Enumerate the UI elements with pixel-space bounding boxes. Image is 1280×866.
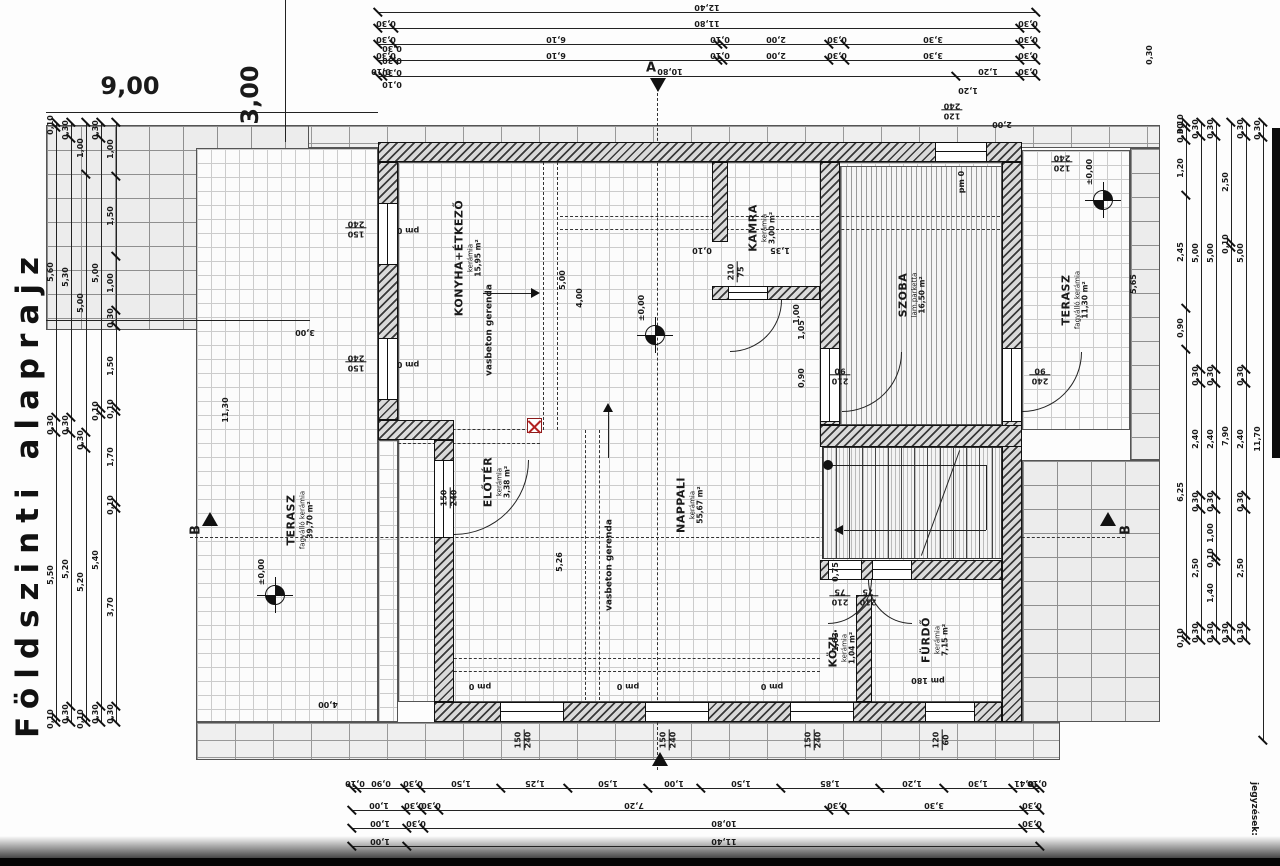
label-pm-0: pm 0 bbox=[397, 360, 419, 368]
room-label-nappali-t: NAPPALI bbox=[675, 477, 688, 533]
winlabel-terasz-right-v2: 240 bbox=[1054, 153, 1071, 162]
dim-chain-left-5-value: 0,10 bbox=[107, 399, 115, 419]
dim-chain-top-3-value: 3,30 bbox=[923, 35, 943, 43]
winlabel-szoba-door: 21090 bbox=[830, 366, 851, 385]
label-5-26: 5,26 bbox=[556, 552, 564, 572]
dim-chain-left-3-value: 5,00 bbox=[77, 293, 85, 313]
dim-chain-left-4-value: 5,00 bbox=[92, 263, 100, 283]
right-edge-bar bbox=[1272, 128, 1280, 458]
room-label-konyha-a: 15,95 m² bbox=[474, 200, 483, 316]
label-5-00: 5,00 bbox=[559, 270, 567, 290]
window-bottom-2 bbox=[645, 702, 709, 722]
winlabel-terasz-door: 24090 bbox=[1030, 366, 1051, 385]
dim-chain-top-3-value: 6,10 bbox=[546, 35, 566, 43]
room-label-kamra-t: KAMRA bbox=[747, 204, 760, 251]
dim-chain-right-2 bbox=[1201, 122, 1202, 640]
paving-bottom-band bbox=[196, 722, 1060, 760]
dim-chain-right-5-value: 2,50 bbox=[1237, 558, 1245, 578]
dim-chain-right-4-value: 2,50 bbox=[1222, 172, 1230, 192]
dim-chain-bottom-2-value: 0,30 bbox=[421, 801, 441, 809]
beam-dash-4 bbox=[560, 229, 1000, 230]
dim-chain-right-2-value: 0,30 bbox=[1192, 119, 1200, 139]
window-szoba-top-mullion bbox=[936, 151, 986, 152]
room-label-terasz-left: TERASZfagyálló kerámia39,70 m² bbox=[285, 491, 314, 549]
beam-arrow-kitchen bbox=[483, 293, 531, 294]
dim-chain-right-2-value: 0,30 bbox=[1192, 492, 1200, 512]
dim-chain-right-5 bbox=[1246, 122, 1247, 640]
room-label-konyha: KONYHA+ÉTKEZŐkerámia15,95 m² bbox=[453, 200, 482, 316]
dim-chain-bottom-2-value: 7,20 bbox=[624, 801, 644, 809]
dim-chain-top-5-value: 10,80 bbox=[657, 67, 682, 75]
window-bottom-3-mullion bbox=[791, 711, 853, 712]
staircase-start-dot bbox=[823, 460, 833, 470]
room-label-terasz-left-a: 39,70 m² bbox=[306, 491, 315, 549]
dim-chain-right-2-value: 0,30 bbox=[1192, 623, 1200, 643]
label-3-00: 3,00 bbox=[238, 65, 262, 124]
dim-chain-bottom-1 bbox=[352, 788, 1040, 789]
winlabel-furdo-door: 21075 bbox=[858, 587, 879, 606]
wall-kitchen-bottom bbox=[378, 420, 454, 440]
dim-chain-top-3-value: 0,30 bbox=[827, 35, 847, 43]
dim-chain-right-3-value: 0,10 bbox=[1207, 548, 1215, 568]
winlabel-szoba-door-v1: 210 bbox=[830, 375, 851, 385]
label-9-00: 9,00 bbox=[100, 74, 159, 98]
dim-chain-top-3-value: 2,00 bbox=[766, 35, 786, 43]
label-0-90: 0,90 bbox=[798, 368, 806, 388]
label-vasbeton-gerenda: vasbeton gerenda bbox=[606, 519, 615, 611]
beam-dash-6 bbox=[398, 443, 540, 444]
dim-chain-top-3-value: 0,30 bbox=[1018, 35, 1038, 43]
dim-chain-left-4-value: 0,30 bbox=[92, 704, 100, 724]
door-szoba-terasz-opening-mullion bbox=[1011, 349, 1012, 421]
dim-chain-left-1-value: 0,30 bbox=[47, 415, 55, 435]
dim-chain-left-3-value: 0,30 bbox=[77, 430, 85, 450]
winlabel-kamra-door-v2: 75 bbox=[738, 266, 747, 277]
dim-chain-right-5-value: 2,40 bbox=[1237, 429, 1245, 449]
winlabel-bottom-1: 150240 bbox=[515, 730, 534, 751]
label-2-00: 2,00 bbox=[992, 120, 1012, 128]
room-label-kamra-a: 3,00 m² bbox=[768, 204, 777, 251]
floor-plan-canvas: Földszinti alaprajz jegyzések: 12,400,30… bbox=[0, 0, 1280, 866]
dim-chain-right-3-value: 1,40 bbox=[1207, 583, 1215, 603]
label-a: A bbox=[646, 62, 656, 75]
dim-chain-top-4 bbox=[378, 60, 1036, 61]
dim-chain-left-2 bbox=[71, 122, 72, 722]
winlabel-kitchen-lower: 150240 bbox=[346, 353, 367, 372]
dim-chain-left-1-value: 5,50 bbox=[47, 565, 55, 585]
dim-chain-bottom-3-value: 0,30 bbox=[406, 819, 426, 827]
dim-chain-top-4-value: 0,10 bbox=[710, 51, 730, 59]
winlabel-kozl-door-v1: 210 bbox=[830, 596, 851, 606]
drawing-title: Földszinti alaprajz bbox=[10, 198, 46, 738]
dim-chain-bottom-2-value: 1,00 bbox=[369, 801, 389, 809]
dim-chain-left-1 bbox=[56, 122, 57, 722]
beam-dash-10 bbox=[434, 671, 820, 672]
room-label-szoba-t: SZOBA bbox=[897, 273, 910, 318]
dim-chain-right-1-value: 0,10 bbox=[1177, 628, 1185, 648]
label-0-10: 0,10 bbox=[382, 80, 402, 88]
winlabel-terasz-right-v1: 120 bbox=[1052, 162, 1073, 172]
label--0-00: ±0,00 bbox=[1086, 159, 1094, 185]
staircase-walkline-bottom bbox=[844, 530, 986, 531]
label-pm-0: pm 0 bbox=[617, 682, 639, 690]
dim-chain-left-3 bbox=[86, 122, 87, 722]
door-furdo-opening bbox=[872, 560, 912, 580]
dim-chain-left-5 bbox=[116, 122, 117, 722]
winlabel-furdo-door-v2: 75 bbox=[862, 587, 873, 596]
dim-chain-right-4-value: 0,30 bbox=[1222, 623, 1230, 643]
dim-chain-right-1-value: 6,25 bbox=[1177, 482, 1185, 502]
dim-chain-left-5-value: 0,30 bbox=[107, 308, 115, 328]
dim-chain-bottom-1-value: 1,50 bbox=[598, 779, 618, 787]
winlabel-kitchen-upper-v1: 150 bbox=[346, 228, 367, 238]
dim-chain-bottom-1-value: 1,50 bbox=[731, 779, 751, 787]
dim-chain-left-5-value: 3,70 bbox=[107, 597, 115, 617]
paving-right-strip bbox=[1130, 148, 1160, 460]
staircase-walk-arrow bbox=[834, 525, 843, 535]
drain-marker bbox=[527, 418, 542, 433]
winlabel-terasz-door-v1: 240 bbox=[1030, 375, 1051, 385]
dim-chain-right-1-value: 1,20 bbox=[1177, 158, 1185, 178]
dim-chain-bottom-3 bbox=[352, 828, 1040, 829]
dim-chain-right-5-value: 5,00 bbox=[1237, 243, 1245, 263]
dim-chain-right-6-value: 11,70 bbox=[1254, 426, 1262, 451]
winlabel-szoba-top: 120240 bbox=[942, 101, 963, 120]
beam-dash-2 bbox=[557, 162, 558, 430]
dim-chain-bottom-2-value: 3,30 bbox=[924, 801, 944, 809]
label-11-30: 11,30 bbox=[222, 397, 230, 422]
level-marker-nappali-circle bbox=[645, 325, 665, 345]
dim-chain-top-5-value: 1,20 bbox=[978, 67, 998, 75]
winlabel-kitchen-lower-v1: 150 bbox=[346, 362, 367, 372]
label-1-63: 1,63 bbox=[832, 632, 840, 652]
dim-chain-left-5-value: 1,00 bbox=[107, 273, 115, 293]
dim-chain-right-3-value: 0,30 bbox=[1207, 119, 1215, 139]
dim-chain-bottom-3-value: 0,30 bbox=[1022, 819, 1042, 827]
bottom-fade-bar bbox=[0, 836, 1280, 860]
door-szoba-terasz-opening bbox=[1002, 348, 1022, 422]
winlabel-furdo-v2: 60 bbox=[943, 734, 952, 745]
dim-chain-top-3 bbox=[378, 44, 1036, 45]
dim-chain-left-2-value: 0,30 bbox=[62, 120, 70, 140]
winlabel-entry-door-v2: 240 bbox=[451, 490, 460, 507]
dim-chain-top-5 bbox=[378, 76, 1036, 77]
dim-chain-right-2-value: 0,30 bbox=[1192, 366, 1200, 386]
beam-dash-8 bbox=[599, 430, 600, 700]
window-bottom-1 bbox=[500, 702, 564, 722]
room-label-terasz-left-t: TERASZ bbox=[285, 491, 298, 549]
door-kamra-opening-mullion bbox=[729, 292, 767, 293]
winlabel-terasz-door-v2: 90 bbox=[1034, 366, 1045, 375]
dim-chain-right-4-value: 7,90 bbox=[1222, 426, 1230, 446]
wall-szoba-bottom bbox=[820, 425, 1022, 447]
level-marker-terasz-left bbox=[265, 585, 285, 605]
label-pm-0: pm 0 bbox=[958, 171, 966, 193]
dim-chain-right-3-value: 0,30 bbox=[1207, 366, 1215, 386]
dim-chain-left-5-value: 0,30 bbox=[107, 704, 115, 724]
room-label-nappali: NAPPALIkerámia55,67 m² bbox=[675, 477, 704, 533]
dim-chain-bottom-1-value: 1,20 bbox=[902, 779, 922, 787]
dim-chain-bottom-1-value: 1,85 bbox=[820, 779, 840, 787]
beam-dash-9 bbox=[434, 658, 820, 659]
dim-chain-right-2-value: 2,50 bbox=[1192, 558, 1200, 578]
winlabel-kitchen-lower-v2: 240 bbox=[348, 353, 365, 362]
dim-chain-top-3-value: 0,30 bbox=[376, 35, 396, 43]
dim-chain-bottom-3-value: 10,80 bbox=[711, 819, 736, 827]
room-label-furdo-t: FÜRDŐ bbox=[920, 617, 933, 663]
label-0-10: 0,10 bbox=[692, 246, 712, 254]
dim-chain-top-2-value: 11,80 bbox=[694, 19, 719, 27]
window-kitchen-upper bbox=[378, 203, 398, 265]
dim-chain-left-5-value: 0,10 bbox=[107, 495, 115, 515]
dim-chain-top-5-value: 0,30 bbox=[1018, 67, 1038, 75]
winlabel-bottom-2: 150240 bbox=[660, 730, 679, 751]
dim-chain-top-4-value: 0,30 bbox=[1018, 51, 1038, 59]
room-label-eloter-a: 3,38 m² bbox=[503, 457, 512, 507]
beam-dash-1 bbox=[543, 162, 544, 430]
dim-chain-left-4 bbox=[101, 122, 102, 722]
label-4-00: 4,00 bbox=[576, 288, 584, 308]
level-marker-terasz-right-circle bbox=[1093, 190, 1113, 210]
dim-chain-right-6 bbox=[1263, 122, 1264, 740]
label-1-00: 1,00 bbox=[793, 304, 801, 324]
dim-chain-bottom-1-value: 1,00 bbox=[665, 779, 685, 787]
label-0-30: 0,30 bbox=[1146, 45, 1154, 65]
winlabel-kozl-door: 21075 bbox=[830, 587, 851, 606]
dim-chain-right-5-value: 0,30 bbox=[1237, 492, 1245, 512]
dim-chain-right-5-value: 0,30 bbox=[1237, 623, 1245, 643]
room-label-furdo: FÜRDŐkerámia7,15 m² bbox=[920, 617, 949, 663]
wall-top bbox=[378, 142, 1022, 162]
section-marker-a-bottom bbox=[652, 752, 668, 766]
label-pm-0: pm 0 bbox=[469, 682, 491, 690]
room-label-szoba: SZOBAlam.parketta16,50 m² bbox=[897, 273, 926, 318]
winlabel-terasz-right: 120240 bbox=[1052, 153, 1073, 172]
dim-chain-left-3-value: 0,10 bbox=[77, 710, 85, 730]
dim-chain-bottom-4-value: 11,40 bbox=[711, 837, 736, 845]
window-bottom-2-mullion bbox=[646, 711, 708, 712]
winlabel-furdo: 12060 bbox=[933, 730, 952, 751]
dim-chain-left-2-value: 5,20 bbox=[62, 559, 70, 579]
room-label-szoba-a: 16,50 m² bbox=[918, 273, 927, 318]
winlabel-szoba-top-v1: 120 bbox=[942, 110, 963, 120]
room-label-eloter: ELŐTÉRkerámia3,38 m² bbox=[482, 457, 511, 507]
winlabel-bottom-1-v2: 240 bbox=[525, 732, 534, 749]
dim-chain-right-3-value: 1,00 bbox=[1207, 523, 1215, 543]
dim-chain-bottom-3-value: 1,00 bbox=[370, 819, 390, 827]
dim-chain-bottom-1-value: 1,50 bbox=[451, 779, 471, 787]
room-label-kamra: KAMRAkerámia3,00 m² bbox=[747, 204, 776, 251]
dim-chain-bottom-1-value: 1,30 bbox=[968, 779, 988, 787]
winlabel-kitchen-upper-v2: 240 bbox=[348, 219, 365, 228]
dim-chain-bottom-1-value: 0,10 bbox=[345, 779, 365, 787]
dim-chain-top-4-value: 0,30 bbox=[827, 51, 847, 59]
dim-chain-bottom-1-value: 0,10 bbox=[1027, 779, 1047, 787]
label-1-35: 1,35 bbox=[770, 246, 790, 254]
winlabel-bottom-3-v2: 240 bbox=[815, 732, 824, 749]
dim-chain-left-2-value: 0,30 bbox=[62, 704, 70, 724]
room-label-eloter-t: ELŐTÉR bbox=[482, 457, 495, 507]
label-4-00: 4,00 bbox=[318, 700, 338, 708]
dim-chain-right-3-value: 0,30 bbox=[1207, 623, 1215, 643]
staircase-walkline-top bbox=[826, 465, 986, 466]
room-label-furdo-a: 7,15 m² bbox=[941, 617, 950, 663]
dim-chain-top-1-value: 12,40 bbox=[694, 3, 719, 11]
room-label-terasz-right-a: 11,30 m² bbox=[1081, 271, 1090, 329]
level-marker-nappali bbox=[645, 325, 665, 345]
dim-chain-bottom-2 bbox=[352, 810, 1040, 811]
window-kitchen-lower bbox=[378, 338, 398, 400]
dim-chain-bottom-1-value: 1,25 bbox=[525, 779, 545, 787]
label-3-00: 3,00 bbox=[295, 328, 315, 336]
room-label-konyha-t: KONYHA+ÉTKEZŐ bbox=[453, 200, 466, 316]
dim-chain-right-3-value: 5,00 bbox=[1207, 243, 1215, 263]
terrace-left-floor-ext bbox=[378, 440, 398, 722]
dim-chain-top-3-value: 0,10 bbox=[710, 35, 730, 43]
label-pm-0: pm 0 bbox=[397, 226, 419, 234]
dim-chain-right-3-value: 0,30 bbox=[1207, 492, 1215, 512]
beam-dash-7 bbox=[585, 430, 586, 700]
dim-chain-right-2-value: 5,00 bbox=[1192, 243, 1200, 263]
label-0-75: 0,75 bbox=[832, 562, 840, 582]
room-label-nappali-a: 55,67 m² bbox=[696, 477, 705, 533]
dim-chain-bottom-4 bbox=[352, 846, 1040, 847]
label-pm-0: pm 0 bbox=[761, 682, 783, 690]
dim-chain-right-3-value: 2,40 bbox=[1207, 429, 1215, 449]
dim-chain-right-1-value: 2,45 bbox=[1177, 242, 1185, 262]
dim-chain-left-1-value: 5,60 bbox=[47, 262, 55, 282]
dim-chain-bottom-1-value: 0,90 bbox=[371, 779, 391, 787]
dim-chain-top-2-value: 0,30 bbox=[1018, 19, 1038, 27]
label-0-30: 0,30 bbox=[382, 56, 402, 64]
window-bottom-3 bbox=[790, 702, 854, 722]
dim-chain-left-4-value: 0,30 bbox=[92, 120, 100, 140]
label-b: B bbox=[190, 525, 203, 535]
winlabel-szoba-top-v2: 240 bbox=[944, 101, 961, 110]
dim-chain-left-1-value: 0,10 bbox=[47, 710, 55, 730]
wall-kamra-left bbox=[712, 162, 728, 242]
dim-leader-9m bbox=[46, 112, 378, 113]
winlabel-furdo-door-v1: 210 bbox=[858, 596, 879, 606]
dim-chain-bottom-4-value: 1,00 bbox=[370, 837, 390, 845]
dim-chain-left-2-value: 5,30 bbox=[62, 267, 70, 287]
winlabel-entry-door: 150240 bbox=[441, 488, 460, 509]
room-label-terasz-right-t: TERASZ bbox=[1060, 271, 1073, 329]
label-0-30: 0,30 bbox=[382, 44, 402, 52]
dim-chain-top-4-value: 3,30 bbox=[923, 51, 943, 59]
beam-arrow-kitchen-head bbox=[531, 288, 540, 298]
winlabel-kamra-door: 21075 bbox=[728, 262, 747, 283]
section-marker-b-right bbox=[1100, 512, 1116, 526]
label-5-65: 5,65 bbox=[1130, 274, 1138, 294]
door-furdo-opening-mullion bbox=[873, 569, 911, 570]
section-marker-a-top bbox=[650, 78, 666, 92]
dim-chain-left-4-value: 5,40 bbox=[92, 550, 100, 570]
dim-chain-left-5-value: 1,70 bbox=[107, 447, 115, 467]
dim-chain-left-5-value: 1,50 bbox=[107, 206, 115, 226]
dim-leader-3m bbox=[285, 0, 286, 142]
staircase-walkline-right bbox=[986, 465, 987, 530]
staircase bbox=[822, 447, 1002, 559]
dim-chain-left-2-value: 0,30 bbox=[62, 415, 70, 435]
dim-chain-left-1-value: 0,10 bbox=[47, 115, 55, 135]
dim-chain-top-4-value: 6,10 bbox=[546, 51, 566, 59]
dim-chain-left-3-value: 5,20 bbox=[77, 572, 85, 592]
beam-arrow-nappali-head bbox=[603, 403, 613, 412]
dim-chain-right-6-value: 0,30 bbox=[1254, 120, 1262, 140]
dim-chain-bottom-1-value: 0,30 bbox=[403, 779, 423, 787]
beam-dash-3 bbox=[560, 216, 1000, 217]
label--0-00: ±0,00 bbox=[638, 295, 646, 321]
dim-chain-top-4-value: 2,00 bbox=[766, 51, 786, 59]
winlabel-szoba-door-v2: 90 bbox=[834, 366, 845, 375]
paving-right-block bbox=[1022, 460, 1160, 722]
window-furdo-mullion bbox=[926, 711, 974, 712]
room-label-kozl-a: 1,04 m² bbox=[848, 628, 857, 667]
dim-chain-bottom-2-value: 0,30 bbox=[1022, 801, 1042, 809]
window-kitchen-upper-mullion bbox=[387, 204, 388, 264]
winlabel-bottom-2-v2: 240 bbox=[670, 732, 679, 749]
label-0-30: 0,30 bbox=[382, 68, 402, 76]
dim-chain-left-5-value: 1,50 bbox=[107, 356, 115, 376]
section-line-a bbox=[657, 88, 658, 770]
label-pm-180: pm 180 bbox=[911, 676, 945, 684]
dim-chain-left-3-value: 1,00 bbox=[77, 138, 85, 158]
window-szoba-top bbox=[935, 142, 987, 162]
window-kitchen-lower-mullion bbox=[387, 339, 388, 399]
dim-chain-right-5-value: 0,30 bbox=[1237, 366, 1245, 386]
window-furdo bbox=[925, 702, 975, 722]
notes-label: jegyzések: bbox=[1249, 782, 1258, 836]
dim-chain-right-1 bbox=[1186, 122, 1187, 640]
dim-chain-right-1-value: 0,30 bbox=[1177, 124, 1185, 144]
dim-chain-right-4-value: 0,10 bbox=[1222, 234, 1230, 254]
dim-chain-right-1-value: 0,90 bbox=[1177, 318, 1185, 338]
dim-chain-left-5-value: 1,00 bbox=[107, 139, 115, 159]
winlabel-bottom-3: 150240 bbox=[805, 730, 824, 751]
bottom-black-bar bbox=[0, 858, 1280, 866]
door-kamra-opening bbox=[728, 286, 768, 300]
dim-chain-top-2-value: 0,30 bbox=[376, 19, 396, 27]
level-marker-terasz-left-circle bbox=[265, 585, 285, 605]
dim-chain-right-4 bbox=[1231, 122, 1232, 640]
dim-chain-right-5-value: 0,30 bbox=[1237, 119, 1245, 139]
section-marker-b-left bbox=[202, 512, 218, 526]
room-label-terasz-right: TERASZfagyálló kerámia11,30 m² bbox=[1060, 271, 1089, 329]
dim-chain-left-4-value: 0,10 bbox=[92, 401, 100, 421]
winlabel-kitchen-upper: 150240 bbox=[346, 219, 367, 238]
dim-chain-right-2-value: 2,40 bbox=[1192, 429, 1200, 449]
label-1-20: 1,20 bbox=[958, 86, 978, 94]
dim-chain-bottom-2-value: 0,30 bbox=[827, 801, 847, 809]
window-bottom-1-mullion bbox=[501, 711, 563, 712]
dim-chain-top-2 bbox=[378, 28, 1036, 29]
winlabel-kozl-door-v2: 75 bbox=[834, 587, 845, 596]
label-b: B bbox=[1120, 525, 1133, 535]
dim-chain-top-1 bbox=[378, 12, 1036, 13]
label-vasbeton-gerenda: vasbeton gerenda bbox=[486, 284, 495, 376]
door-nappali-szoba-opening-mullion bbox=[829, 349, 830, 421]
level-marker-terasz-right bbox=[1093, 190, 1113, 210]
label--0-00: ±0,00 bbox=[258, 559, 266, 585]
beam-arrow-nappali bbox=[608, 412, 609, 458]
